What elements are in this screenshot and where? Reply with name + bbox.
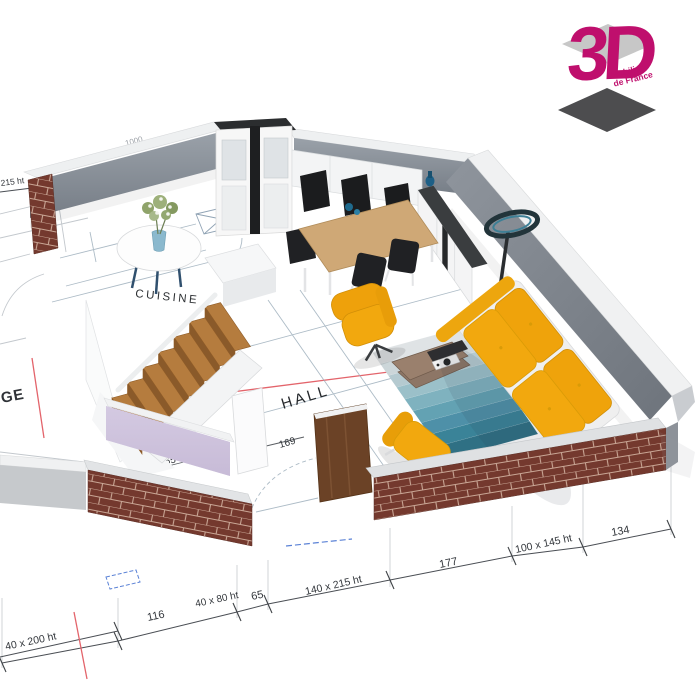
dim-140x215: 140 x 215 ht xyxy=(304,573,363,598)
dim-40x200: 40 x 200 ht xyxy=(4,630,57,653)
dim-116: 116 xyxy=(146,609,166,624)
kitchen-table xyxy=(117,195,201,294)
front-left-concrete-wall xyxy=(0,455,86,510)
dim-177: 177 xyxy=(438,556,458,571)
room-label-cuisine: CUISINE xyxy=(135,288,200,307)
blue-dashed-marks xyxy=(106,539,352,589)
bar-chair xyxy=(300,170,330,212)
understair-door xyxy=(232,388,268,474)
dim-65: 65 xyxy=(250,589,264,603)
hall-door xyxy=(314,404,372,502)
dim-40x80: 40 x 80 ht xyxy=(194,590,239,610)
mobilier-de-france-logo: 3D Mobilier de France xyxy=(550,24,672,136)
dim-215ht: 215 ht xyxy=(0,175,25,188)
display-cabinet xyxy=(214,118,296,236)
floorplan-page: 116 40 x 80 ht 65 140 x 215 ht 177 100 x… xyxy=(0,0,695,695)
dim-134: 134 xyxy=(610,524,630,539)
logo-brand-text: 3D xyxy=(548,14,670,94)
room-label-garage: GE xyxy=(0,386,26,407)
room-label-hall: HALL xyxy=(279,382,331,413)
dim-169: 169 xyxy=(278,436,297,451)
